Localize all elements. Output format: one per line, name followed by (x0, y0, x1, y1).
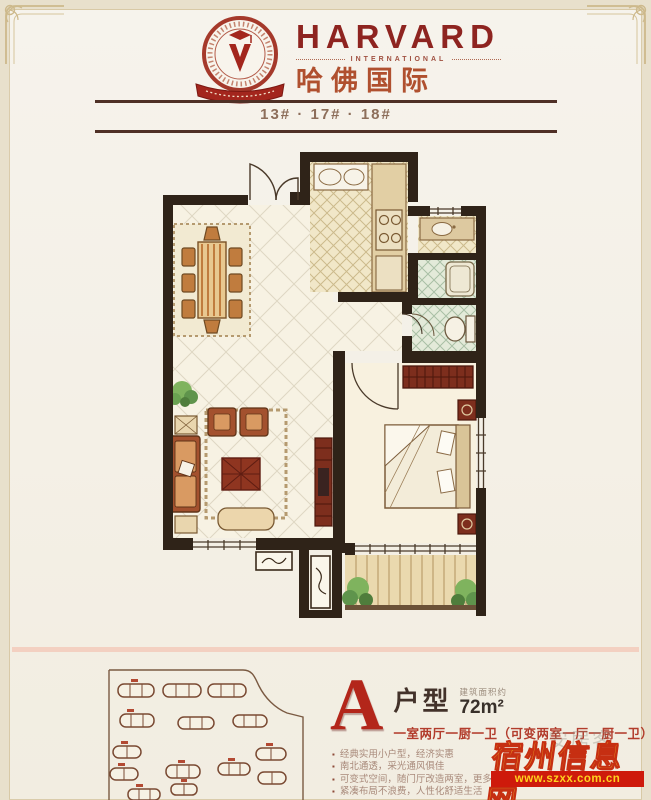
brand-block: HARVARD INTERNATIONAL 哈佛国际 (296, 20, 526, 97)
unit-area-value: 72m² (459, 698, 507, 717)
brand-tagline: INTERNATIONAL (296, 56, 501, 63)
tv-icon (318, 468, 329, 496)
site-watermark: 宿州信息网 (483, 731, 651, 800)
toilet-icon (445, 317, 465, 341)
unit-type-label: 户型 (393, 688, 451, 714)
dining-area (174, 224, 250, 336)
unit-letter: A (330, 674, 383, 737)
headboard (456, 425, 470, 508)
entry-door-icon (250, 164, 276, 200)
site-url-bar: www.szxx.com.cn (491, 771, 644, 787)
site-url: www.szxx.com.cn (515, 773, 621, 785)
unit-area-note: 建筑面积约 (459, 688, 507, 697)
site-plan (93, 662, 308, 800)
separator-strip (12, 647, 639, 652)
site-buildings (110, 684, 286, 800)
flyer: HARVARD INTERNATIONAL 哈佛国际 13# · 17# · 1… (0, 0, 651, 800)
floor-plan (158, 148, 498, 648)
nightstand (458, 514, 476, 534)
ac-units (256, 552, 330, 608)
brand-cn-name: 哈佛国际 (296, 67, 526, 97)
tv-bench (218, 508, 274, 530)
brand-emblem-icon (190, 12, 290, 106)
brand-name: HARVARD (296, 20, 526, 53)
divider-line (95, 130, 557, 133)
kitchen-cabinet (376, 256, 402, 290)
divider-line (95, 100, 557, 103)
side-table (175, 516, 197, 533)
nightstand (458, 400, 476, 420)
building-numbers: 13# · 17# · 18# (95, 106, 557, 123)
